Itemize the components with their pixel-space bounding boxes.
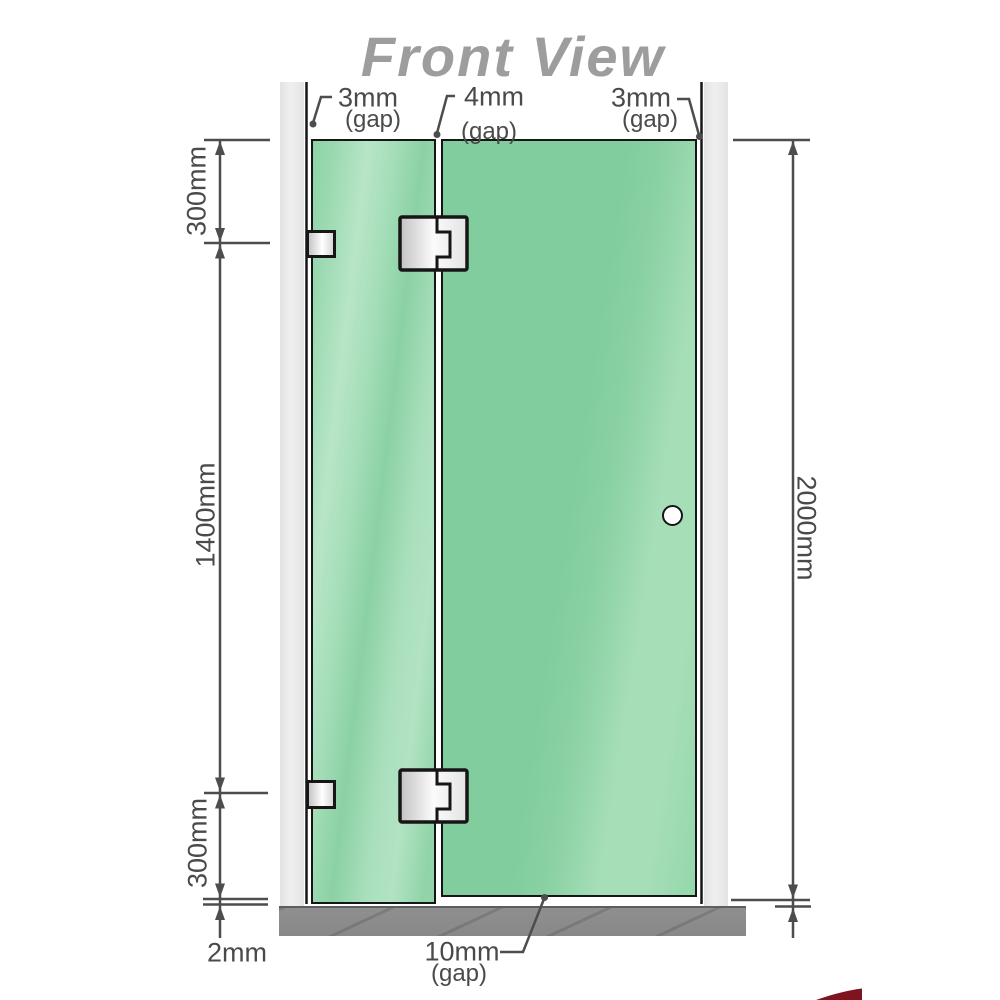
label-gap-top-middle-qualifier: (gap) (461, 120, 517, 144)
label-gap-top-middle-value: 4mm (464, 84, 524, 111)
label-dim-300-bottom: 300mm (185, 798, 212, 888)
label-gap-bottom-qualifier: (gap) (431, 962, 487, 986)
door-knob (662, 505, 683, 526)
diagram-canvas: Front View (0, 0, 1000, 1000)
right-wall-channel (704, 82, 728, 906)
page-title: Front View (361, 24, 665, 89)
door-glass-panel (441, 139, 697, 897)
label-gap-top-right-qualifier: (gap) (622, 108, 678, 132)
floor-base-bar (279, 906, 746, 936)
label-dim-2mm: 2mm (207, 940, 267, 967)
label-gap-top-left-qualifier: (gap) (345, 108, 401, 132)
logo-fragment-icon (816, 989, 862, 1000)
label-dim-1400: 1400mm (193, 462, 220, 567)
label-dim-300-top: 300mm (184, 146, 211, 236)
wall-bracket-top-icon (306, 230, 336, 258)
wall-bracket-bottom-icon (306, 780, 336, 809)
label-dim-2000: 2000mm (793, 475, 820, 580)
left-wall-channel (280, 82, 304, 906)
